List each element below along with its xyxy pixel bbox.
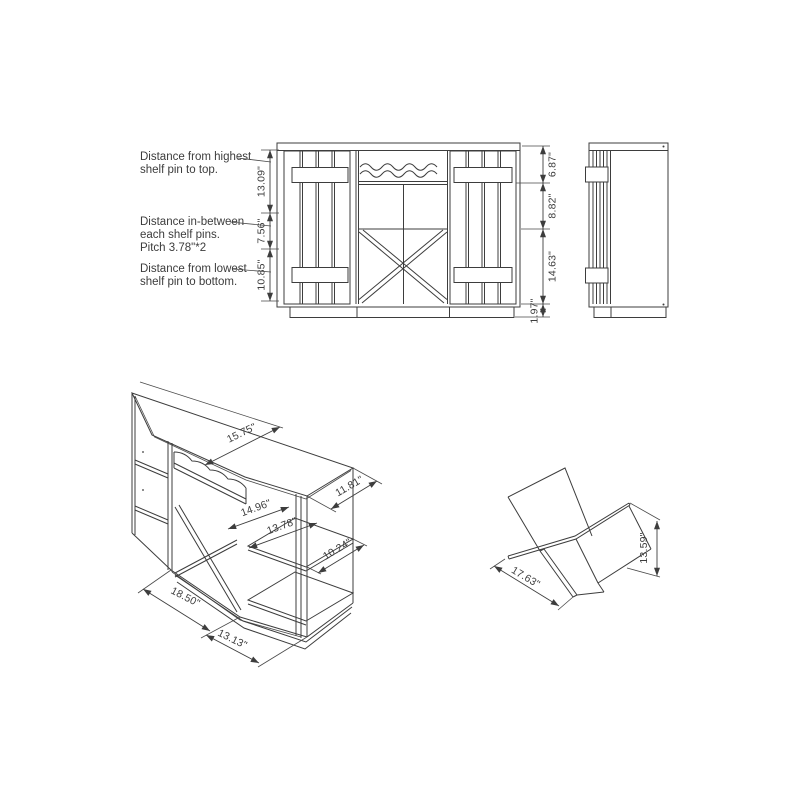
side-view-drawing bbox=[586, 143, 669, 318]
wine-rack-wave-top bbox=[360, 164, 437, 171]
dim-label-6-87: 6.87" bbox=[546, 152, 558, 177]
front-view-drawing: 13.09" 7.56" 10.85" 6.87" 8.82" 14.63" 1… bbox=[255, 143, 558, 324]
shelf-pin-notes: Distance from highest shelf pin to top. … bbox=[140, 151, 271, 288]
dim-label-7-56: 7.56" bbox=[255, 218, 267, 243]
x-brace-part-drawing: 17.63" 13.59" bbox=[490, 468, 660, 610]
right-door-lower-crossboard bbox=[454, 268, 512, 283]
right-door-upper-crossboard bbox=[454, 168, 512, 183]
dim-label-13-78: 13.78" bbox=[265, 515, 298, 537]
left-door-lower-crossboard bbox=[292, 268, 348, 283]
furniture-dimension-diagram: 13.09" 7.56" 10.85" 6.87" 8.82" 14.63" 1… bbox=[0, 0, 800, 800]
note-between-line1: Distance in-between bbox=[140, 216, 244, 228]
dim-label-15-75: 15.75" bbox=[225, 421, 258, 445]
note-lowest-line1: Distance from lowest bbox=[140, 263, 248, 275]
dim-label-14-63: 14.63" bbox=[546, 251, 558, 282]
dim-label-14-96: 14.96" bbox=[239, 497, 272, 519]
front-right-door bbox=[450, 151, 516, 304]
dim-label-13-13: 13.13" bbox=[216, 627, 249, 651]
dim-label-17-63: 17.63" bbox=[509, 564, 542, 590]
dim-label-8-82: 8.82" bbox=[546, 193, 558, 218]
wine-rack-wave-bottom bbox=[360, 171, 437, 178]
front-left-door bbox=[284, 151, 350, 304]
side-lower-crossboard-end bbox=[586, 268, 609, 283]
iso-dimensions: 15.75" 11.81" 14.96" 13.78" 10.24" 18.50… bbox=[138, 382, 382, 667]
isometric-view-drawing: 15.75" 11.81" 14.96" 13.78" 10.24" 18.50… bbox=[132, 382, 382, 667]
front-center-section bbox=[356, 151, 450, 304]
dim-label-13-59: 13.59" bbox=[638, 532, 650, 563]
note-highest-line2: shelf pin to top. bbox=[140, 164, 218, 176]
dim-label-10-85: 10.85" bbox=[255, 259, 267, 290]
front-right-dimensions: 6.87" 8.82" 14.63" 1.97" bbox=[515, 146, 558, 324]
front-base bbox=[290, 307, 514, 318]
left-door-upper-crossboard bbox=[292, 168, 348, 183]
note-between-line3: Pitch 3.78"*2 bbox=[140, 242, 206, 254]
iso-wine-rack bbox=[174, 452, 246, 504]
side-upper-crossboard-end bbox=[586, 167, 609, 182]
cross-dimensions: 17.63" 13.59" bbox=[490, 503, 660, 610]
note-between-line2: each shelf pins. bbox=[140, 229, 220, 241]
side-base bbox=[594, 307, 666, 318]
note-highest-line1: Distance from highest bbox=[140, 151, 252, 163]
dim-label-10-24: 10.24" bbox=[321, 536, 354, 562]
dim-label-18-50: 18.50" bbox=[169, 585, 202, 610]
technical-drawing-page: 13.09" 7.56" 10.85" 6.87" 8.82" 14.63" 1… bbox=[0, 0, 800, 800]
dim-label-1-97: 1.97" bbox=[528, 298, 540, 323]
note-lowest-line2: shelf pin to bottom. bbox=[140, 276, 237, 288]
dim-label-13-09: 13.09" bbox=[255, 166, 267, 197]
